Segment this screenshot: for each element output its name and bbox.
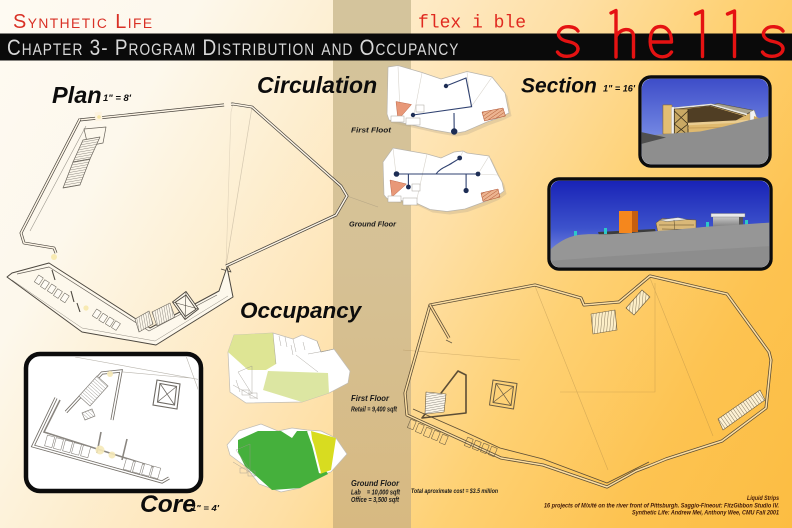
svg-text:Synthetic Life: Synthetic Life <box>13 11 154 33</box>
svg-text:flex i ble: flex i ble <box>418 14 526 34</box>
svg-text:Section: Section <box>521 75 597 98</box>
svg-text:Ground Floor: Ground Floor <box>349 220 397 229</box>
svg-text:Occupancy: Occupancy <box>240 298 363 323</box>
svg-text:Ground Floor: Ground Floor <box>351 478 400 488</box>
svg-text:Core: Core <box>140 491 196 518</box>
svg-text:Plan: Plan <box>52 82 102 108</box>
svg-text:1" = 16': 1" = 16' <box>603 84 636 94</box>
svg-text:Liquid Strips: Liquid Strips <box>747 495 779 502</box>
svg-text:1" = 8': 1" = 8' <box>103 93 132 103</box>
svg-text:Synthetic Life: Andrew Mei, An: Synthetic Life: Andrew Mei, Anthony Wee,… <box>632 510 779 517</box>
svg-text:1" = 4': 1" = 4' <box>191 503 220 513</box>
svg-text:First Floor: First Floor <box>351 393 390 403</box>
svg-text:Chapter 3- Program Distributio: Chapter 3- Program Distribution and Occu… <box>7 36 459 61</box>
svg-text:Total aproximate cost = $3.5 m: Total aproximate cost = $3.5 million <box>411 488 498 495</box>
svg-text:Circulation: Circulation <box>257 72 377 98</box>
svg-text:Office = 3,500 sqft: Office = 3,500 sqft <box>351 497 400 504</box>
svg-text:Lab = 10,000 sqft: Lab = 10,000 sqft <box>351 490 401 497</box>
svg-text:First Floot: First Floot <box>351 126 392 135</box>
svg-text:16 projects of M/x/té on the r: 16 projects of M/x/té on the river front… <box>544 503 779 510</box>
svg-text:Retail = 9,400 sqft: Retail = 9,400 sqft <box>351 407 398 414</box>
